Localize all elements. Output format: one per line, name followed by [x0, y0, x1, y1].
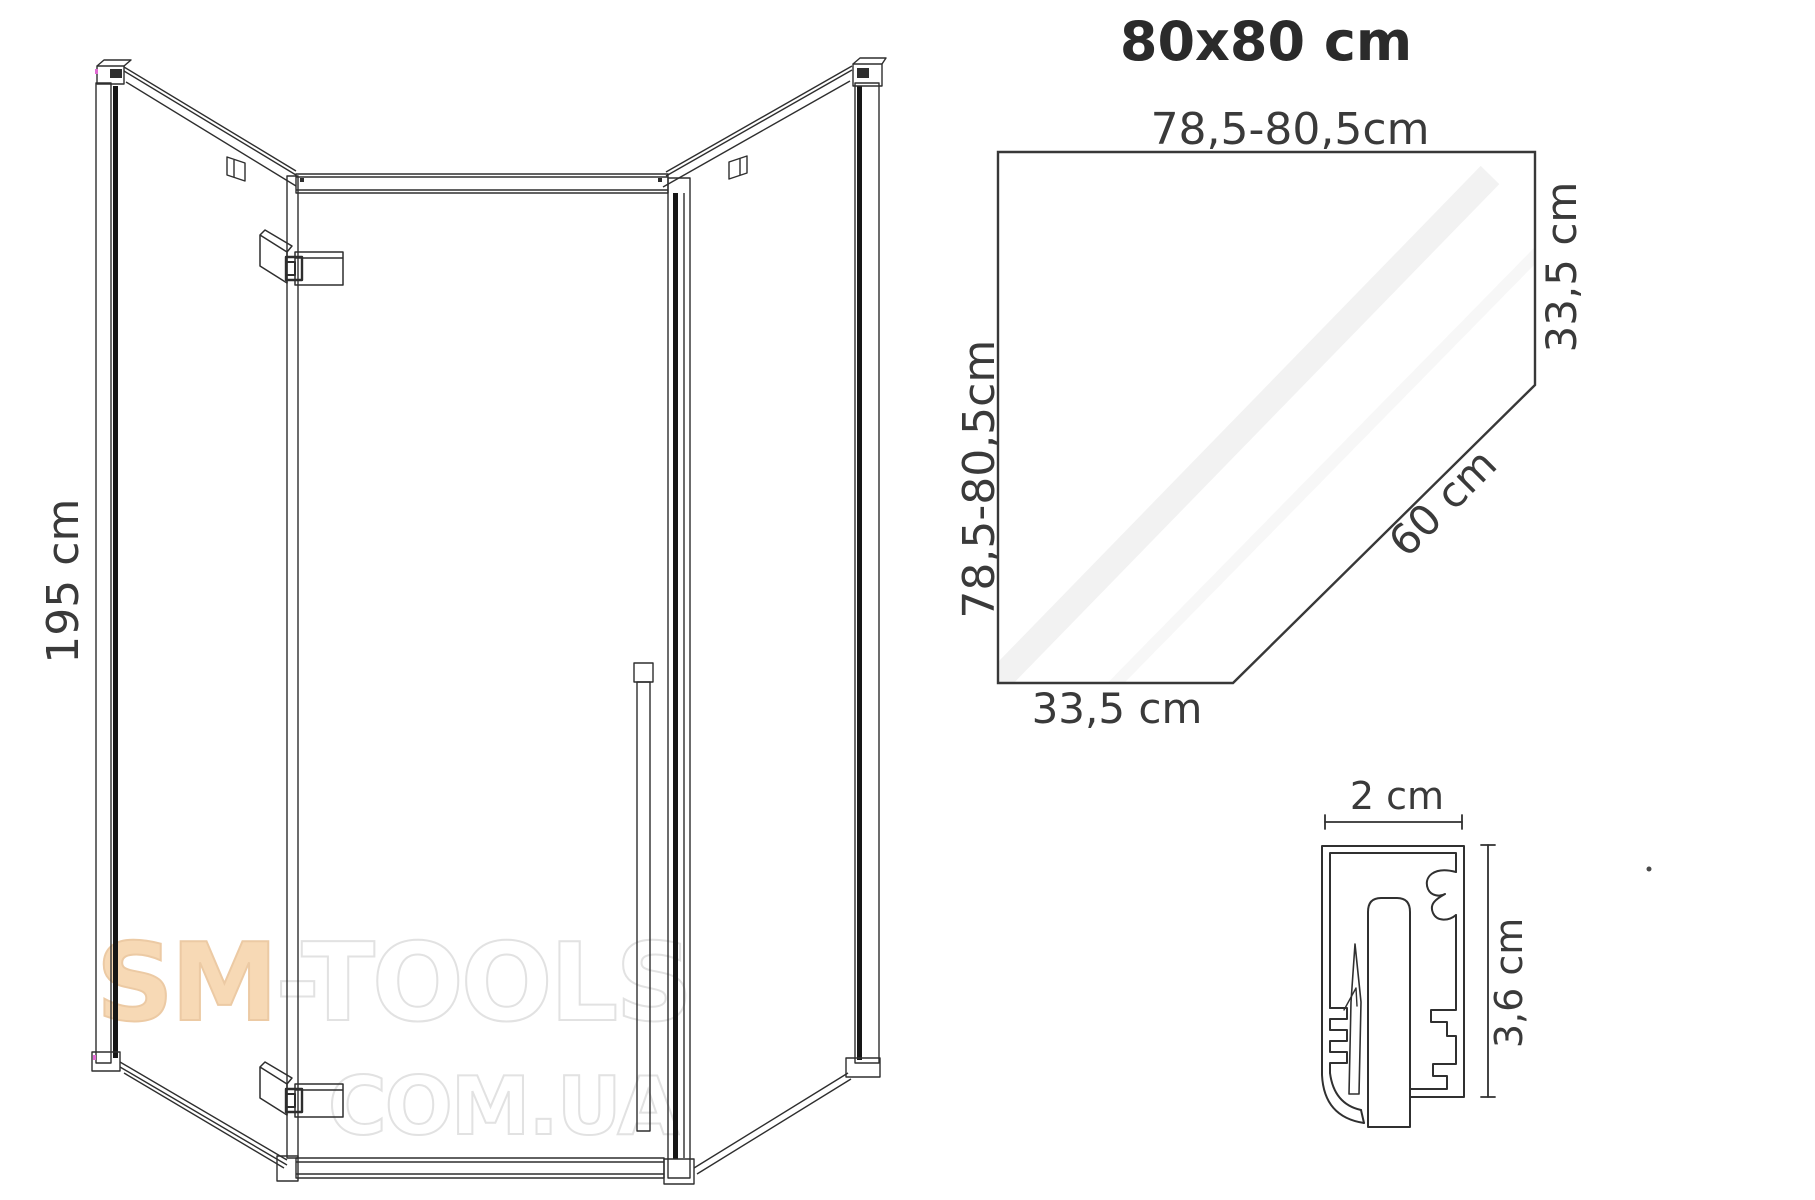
plan-left-dimension-label: 78,5-80,5cm — [956, 289, 1004, 669]
hinge-bottom — [260, 1062, 343, 1117]
corner-cap-notch — [110, 69, 122, 78]
elevation-height-label: 195 cm — [40, 471, 88, 691]
artifact-speck-bottom — [93, 1055, 96, 1060]
page: SM-TOOLS COM.UA — [0, 0, 1815, 1200]
wall-bracket-right — [729, 156, 747, 179]
hinge-top — [260, 230, 343, 285]
artifact-speck-top — [95, 69, 98, 74]
size-title: 80x80 cm — [1086, 12, 1446, 71]
plan-top-dimension-label: 78,5-80,5cm — [1140, 106, 1440, 154]
elevation-drawing — [92, 58, 886, 1184]
stray-dot — [1647, 867, 1652, 872]
glass-pane — [1368, 898, 1410, 1127]
plan-bottom-dimension-label: 33,5 cm — [1017, 686, 1217, 732]
profile-width-label: 2 cm — [1327, 776, 1467, 818]
door-handle — [634, 663, 653, 1131]
profile-height-label: 3,6 cm — [1489, 883, 1531, 1083]
plan-right-dimension-label: 33,5 cm — [1539, 167, 1585, 367]
wall-bracket-left — [227, 157, 245, 181]
